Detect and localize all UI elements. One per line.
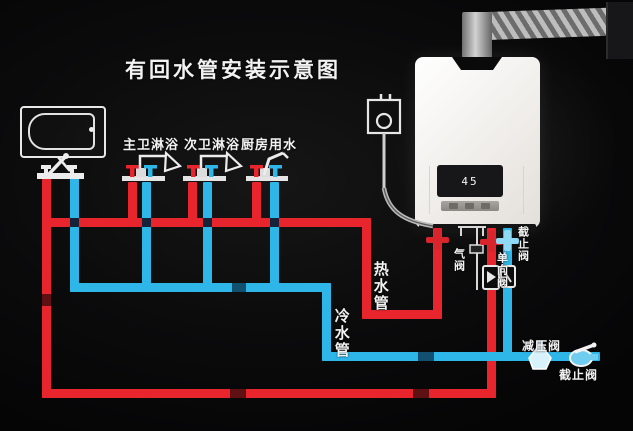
- stop-valve-label-heater: 截止阀: [517, 226, 529, 262]
- stop-valve-label-cold-main: 截止阀: [559, 366, 598, 383]
- cold-inlet-valve-icon: [496, 230, 519, 251]
- lever-stop-valve-icon: [570, 343, 598, 367]
- bathtub-faucet-icon: [37, 153, 84, 179]
- hot-water-pipe-label: 热水管: [372, 261, 388, 312]
- gas-valve-label: 气阀: [453, 248, 465, 272]
- line-art-layer: [0, 0, 633, 431]
- installation-diagram: 有回水管安装示意图 主卫淋浴 次卫淋浴 厨房用水 45: [0, 0, 633, 431]
- kitchen-tap-icon: [246, 153, 288, 181]
- gas-meter-box-icon: [368, 94, 400, 133]
- check-valve-label: 单向阀: [496, 252, 508, 288]
- cold-water-pipe-label: 冷水管: [333, 308, 349, 359]
- shower-fixture-icon: [183, 153, 241, 181]
- pressure-reducing-valve-label: 减压阀: [522, 337, 561, 354]
- shower-fixture-icon: [122, 153, 180, 181]
- hot-outlet-valve-icon: [426, 229, 449, 250]
